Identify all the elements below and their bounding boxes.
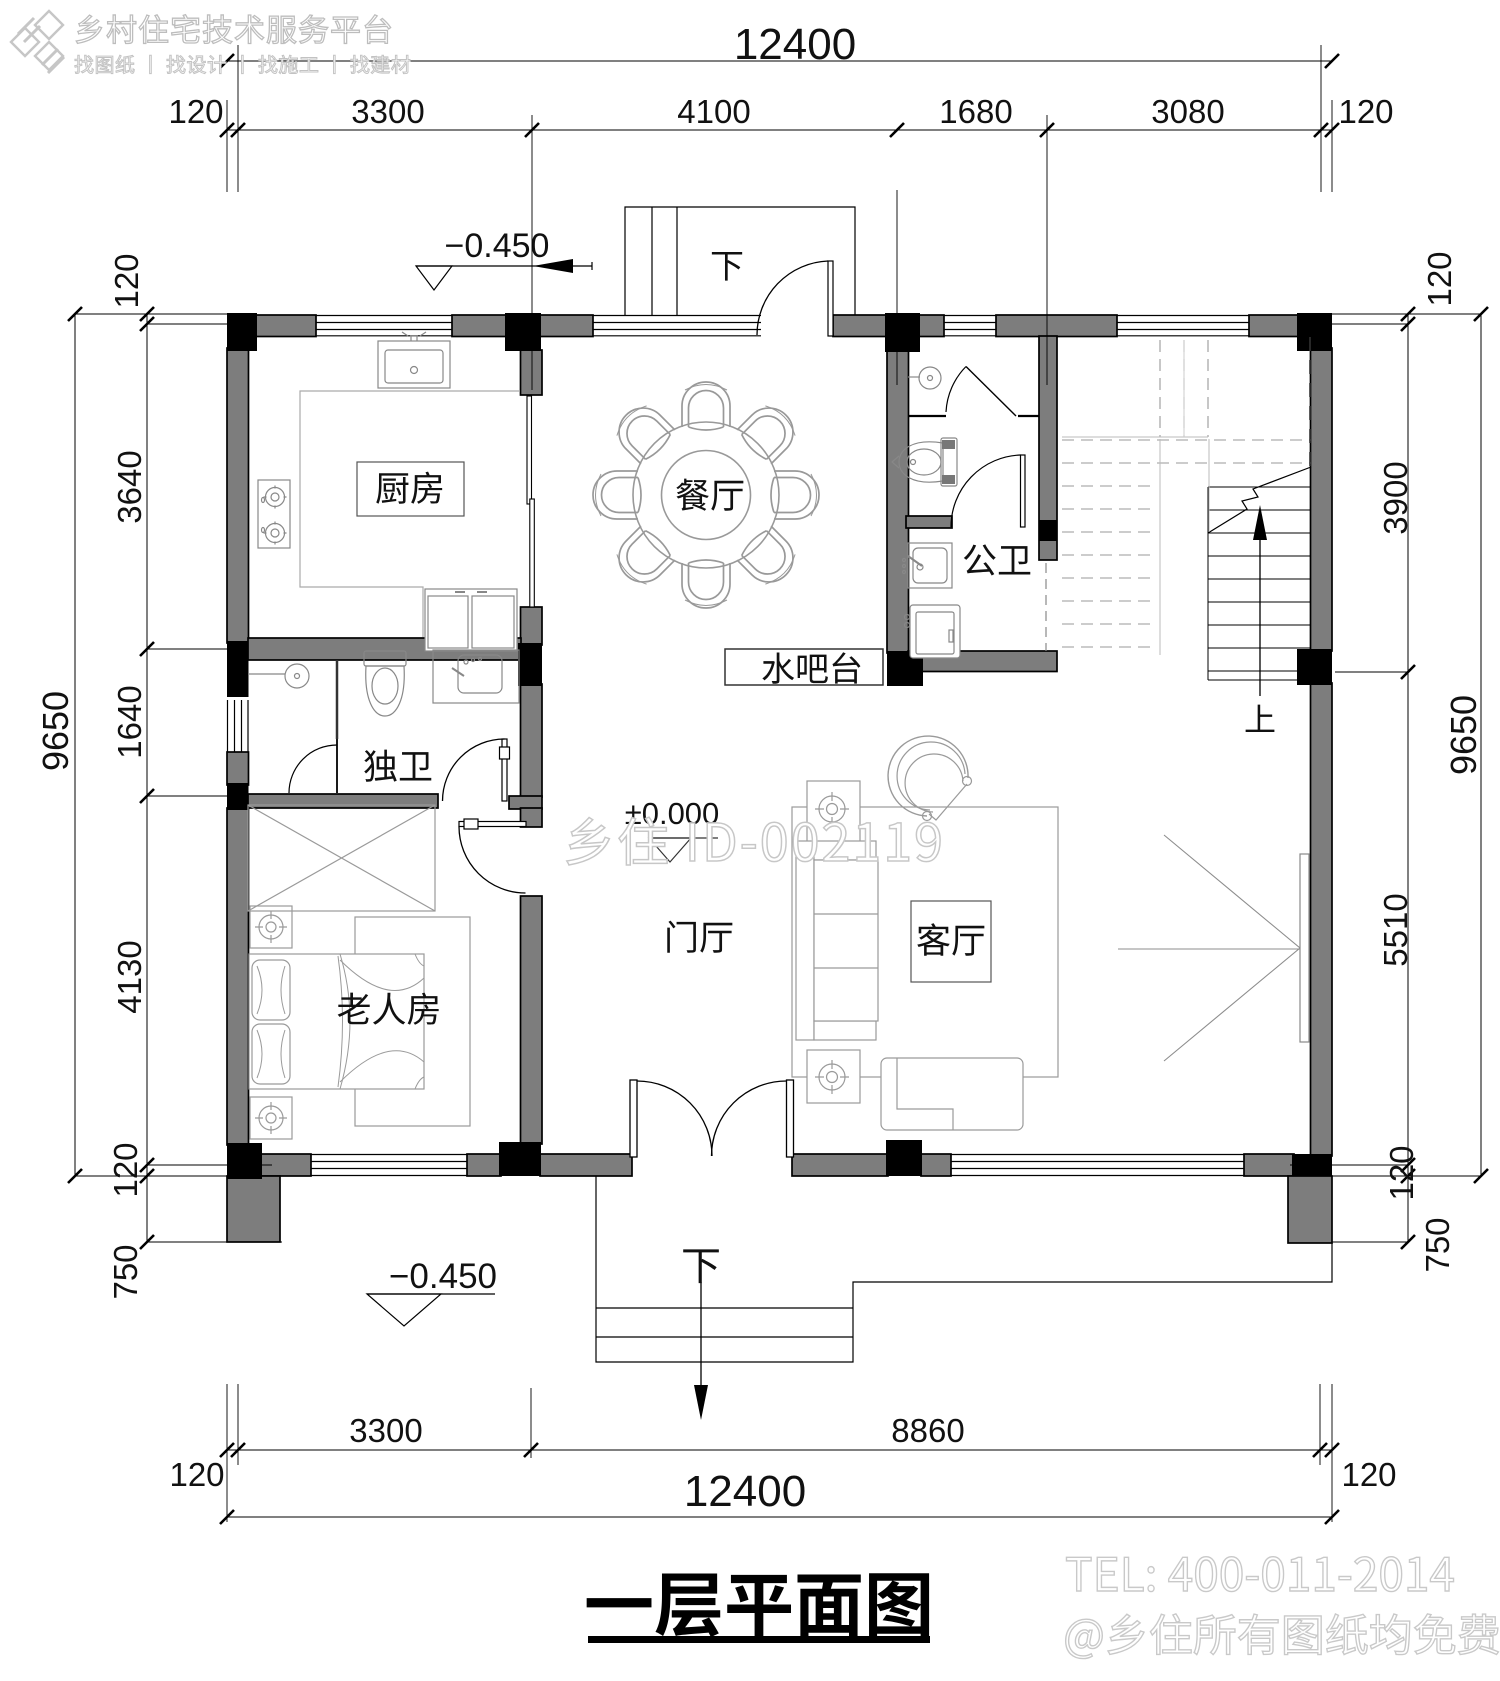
svg-text:120: 120	[1341, 1456, 1396, 1493]
svg-text:1640: 1640	[111, 685, 148, 758]
svg-text:750: 750	[1419, 1217, 1456, 1272]
svg-text:120: 120	[108, 253, 145, 308]
svg-text:9650: 9650	[35, 691, 76, 771]
svg-text:4100: 4100	[677, 93, 750, 130]
svg-text:3080: 3080	[1151, 93, 1224, 130]
svg-text:12400: 12400	[684, 1467, 806, 1516]
svg-text:12400: 12400	[734, 20, 856, 69]
svg-text:120: 120	[168, 93, 223, 130]
svg-text:−0.450: −0.450	[389, 1257, 497, 1296]
svg-text:5510: 5510	[1377, 893, 1414, 966]
svg-text:3300: 3300	[351, 93, 424, 130]
svg-text:1680: 1680	[939, 93, 1012, 130]
svg-text:750: 750	[107, 1244, 144, 1299]
svg-text:120: 120	[1383, 1145, 1420, 1200]
svg-text:3640: 3640	[111, 450, 148, 523]
svg-text:8860: 8860	[891, 1412, 964, 1449]
svg-text:120: 120	[107, 1142, 144, 1197]
svg-text:3300: 3300	[349, 1412, 422, 1449]
svg-text:4130: 4130	[111, 940, 148, 1013]
svg-text:120: 120	[1338, 93, 1393, 130]
svg-text:3900: 3900	[1377, 461, 1414, 534]
svg-text:120: 120	[1421, 251, 1458, 306]
svg-text:−0.450: −0.450	[445, 227, 550, 265]
svg-text:±0.000: ±0.000	[625, 796, 720, 831]
svg-text:120: 120	[169, 1456, 224, 1493]
svg-text:9650: 9650	[1443, 695, 1484, 775]
